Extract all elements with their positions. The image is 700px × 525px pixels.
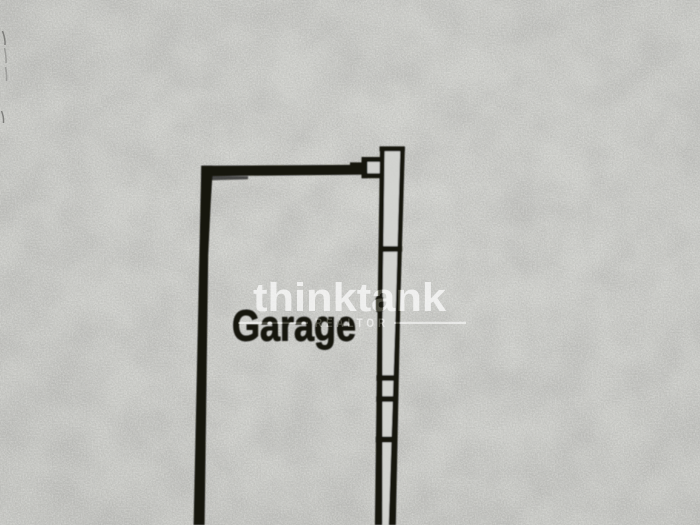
svg-text:thinktank: thinktank [253,276,447,320]
svg-text:REALTOR: REALTOR [315,318,389,330]
